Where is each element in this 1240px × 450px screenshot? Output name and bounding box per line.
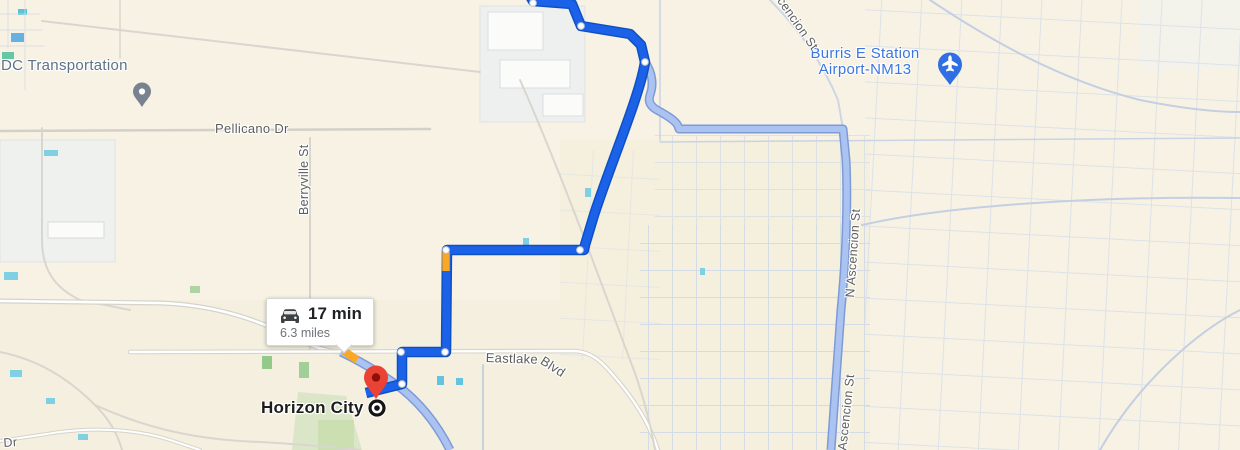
street-label-eastlake: Eastlake xyxy=(485,350,538,367)
route-distance: 6.3 miles xyxy=(280,326,330,340)
car-icon xyxy=(278,307,302,325)
route-duration: 17 min xyxy=(308,304,362,324)
city-label-horizon-city[interactable]: Horizon City xyxy=(261,398,364,418)
bullseye-icon[interactable] xyxy=(368,399,387,418)
street-label-pellicano-dr: Pellicano Dr xyxy=(215,121,289,136)
poi-label-line2: Airport-NM13 xyxy=(790,62,940,78)
route-info-bubble[interactable]: 17 min 6.3 miles xyxy=(266,298,374,346)
map-canvas[interactable]: DC Transportation Pellicano Dr Berryvill… xyxy=(0,0,1240,450)
street-label-dr-corner: Dr xyxy=(3,435,18,450)
poi-label-dc-transportation[interactable]: DC Transportation xyxy=(1,57,128,74)
street-label-berryville-st: Berryville St xyxy=(297,144,311,215)
map-graphics xyxy=(0,0,1240,450)
